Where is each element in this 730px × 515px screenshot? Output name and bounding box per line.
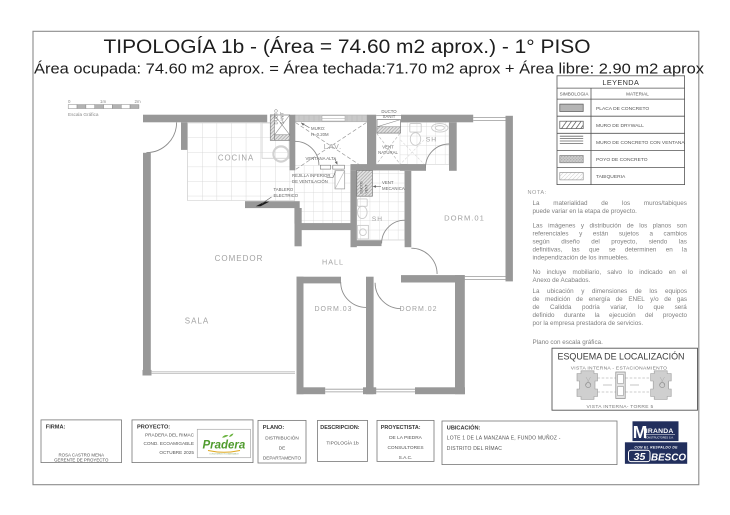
svg-text:IRANDA: IRANDA xyxy=(646,428,674,435)
svg-text:La ubicación y dimensiones de: La ubicación y dimensiones de los equipo… xyxy=(533,288,688,295)
svg-text:DESCRIPCION:: DESCRIPCION: xyxy=(320,425,359,431)
svg-text:BESCO: BESCO xyxy=(651,452,686,464)
svg-text:referenciales y están sujetos: referenciales y están sujetos a cambios xyxy=(533,230,688,237)
svg-text:de medición de energía de ENEL: de medición de energía de ENEL y/o de ga… xyxy=(533,296,688,303)
svg-text:POYO DE CONCRETO: POYO DE CONCRETO xyxy=(596,157,648,163)
svg-text:TIPOLOGÍA 1b - (Área = 74.60: TIPOLOGÍA 1b - (Área = 74.60 m2 aprox.) … xyxy=(104,35,591,58)
svg-text:HALL: HALL xyxy=(322,258,344,267)
svg-text:VISTA INTERNA - ESTACIONAMIENT: VISTA INTERNA - ESTACIONAMIENTO xyxy=(571,365,668,371)
svg-text:TIPOLOGÍA 1b: TIPOLOGÍA 1b xyxy=(326,439,359,446)
svg-text:PRADERA DEL RIMAC: PRADERA DEL RIMAC xyxy=(145,433,195,438)
svg-text:COCINA: COCINA xyxy=(218,154,254,163)
svg-text:No incluye mobiliario, salvo l: No incluye mobiliario, salvo lo indicado… xyxy=(533,269,687,276)
svg-text:CON EL RESPALDO DE: CON EL RESPALDO DE xyxy=(634,445,678,449)
svg-text:ELECTRICO: ELECTRICO xyxy=(274,193,299,198)
svg-text:Las imágenes y distribución de: Las imágenes y distribución de los plano… xyxy=(533,222,688,229)
svg-text:puede variar en la etapa de pr: puede variar en la etapa de proyecto. xyxy=(533,208,638,215)
svg-text:COND. ECOAMIGABLE: COND. ECOAMIGABLE xyxy=(143,441,194,446)
svg-text:VENTANA ALTA: VENTANA ALTA xyxy=(306,156,337,161)
svg-text:según diseño del proyecto, sie: según diseño del proyecto, siendo las xyxy=(533,238,687,245)
svg-text:CONSTRUCTORES S.A.: CONSTRUCTORES S.A. xyxy=(645,435,674,439)
svg-text:DORM.03: DORM.03 xyxy=(314,306,352,313)
svg-text:definido durante la ejecución: definido durante la ejecución del proyec… xyxy=(533,312,688,319)
svg-text:SANIT: SANIT xyxy=(383,114,396,119)
svg-text:DE VENTILACIÓN: DE VENTILACIÓN xyxy=(292,179,328,184)
svg-text:MURO DE DRYWALL: MURO DE DRYWALL xyxy=(596,123,644,129)
svg-text:MECANICA: MECANICA xyxy=(382,186,405,191)
svg-text:UBICACIÓN:: UBICACIÓN: xyxy=(447,423,481,431)
svg-text:TABIQUERIA: TABIQUERIA xyxy=(596,174,626,180)
svg-text:NOTA:: NOTA: xyxy=(528,190,547,196)
svg-text:definitivas, las que se determ: definitivas, las que se determinen en la xyxy=(533,246,688,253)
svg-text:PROYECTO:: PROYECTO: xyxy=(137,425,170,431)
svg-text:Pradera: Pradera xyxy=(202,440,245,452)
svg-text:Plano con escala gráfica.: Plano con escala gráfica. xyxy=(533,339,604,346)
svg-text:Anexo de Acabados.: Anexo de Acabados. xyxy=(533,277,591,284)
svg-text:DUCTO: DUCTO xyxy=(381,109,397,114)
svg-text:DEPARTAMENTO: DEPARTAMENTO xyxy=(263,455,302,460)
svg-text:VENT: VENT xyxy=(382,145,394,150)
svg-text:Escala Gráfica: Escala Gráfica xyxy=(68,112,99,117)
svg-text:H=0.20M: H=0.20M xyxy=(311,132,329,137)
svg-text:DE LA PIEDRA: DE LA PIEDRA xyxy=(389,435,423,441)
svg-text:2m: 2m xyxy=(135,99,141,104)
svg-text:LOTE 1 DE LA MANZANA E, FUNDO: LOTE 1 DE LA MANZANA E, FUNDO MUÑOZ - xyxy=(447,434,561,441)
svg-text:SIMBOLOGIA: SIMBOLOGIA xyxy=(560,92,590,97)
svg-text:independización de los inmuebl: independización de los inmuebles. xyxy=(533,254,630,261)
svg-text:LAV.: LAV. xyxy=(324,142,342,151)
svg-text:MATERIAL: MATERIAL xyxy=(626,92,649,97)
svg-text:MURO:: MURO: xyxy=(311,126,325,131)
svg-text:DORM.01: DORM.01 xyxy=(444,214,485,223)
svg-text:DUCTO: DUCTO xyxy=(274,109,279,125)
svg-text:DORM.02: DORM.02 xyxy=(399,306,437,313)
svg-text:TABLERO: TABLERO xyxy=(274,187,294,192)
svg-text:por la empresa prestadora de s: por la empresa prestadora de servicios. xyxy=(533,320,644,327)
svg-text:SH: SH xyxy=(372,216,383,223)
svg-text:DISTRIBUCIÓN: DISTRIBUCIÓN xyxy=(265,435,299,441)
svg-text:PROYECTISTA:: PROYECTISTA: xyxy=(381,425,421,431)
svg-text:SH: SH xyxy=(426,137,437,144)
svg-text:S.A.C.: S.A.C. xyxy=(399,455,413,461)
svg-text:VENT: VENT xyxy=(365,184,369,193)
svg-text:1m: 1m xyxy=(100,99,106,104)
svg-text:de Calidda podría variar, lo q: de Calidda podría variar, lo que será xyxy=(533,304,688,311)
svg-text:PLANO:: PLANO: xyxy=(263,425,285,431)
svg-text:VISTA INTERNA- TORRE 5: VISTA INTERNA- TORRE 5 xyxy=(587,404,654,410)
svg-text:CONSULTORES: CONSULTORES xyxy=(387,445,423,451)
svg-text:Área ocupada: 74.60 m2 aprox.: Área ocupada: 74.60 m2 aprox. = Área tec… xyxy=(34,61,705,78)
svg-text:SALA: SALA xyxy=(185,317,209,326)
svg-text:VENT: VENT xyxy=(382,180,394,185)
svg-text:DISTRITO DEL RÍMAC: DISTRITO DEL RÍMAC xyxy=(447,445,502,452)
svg-text:CONDOMINIO ECOAMIGABLE: CONDOMINIO ECOAMIGABLE xyxy=(209,453,239,456)
svg-text:SANIT: SANIT xyxy=(280,111,285,124)
svg-text:LEYENDA: LEYENDA xyxy=(602,78,639,87)
svg-text:ESQUEMA DE LOCALIZACIÓN: ESQUEMA DE LOCALIZACIÓN xyxy=(558,352,685,362)
svg-text:NATURAL: NATURAL xyxy=(378,150,398,155)
svg-text:GERENTE DE PROYECTO: GERENTE DE PROYECTO xyxy=(54,458,109,463)
svg-text:35: 35 xyxy=(634,451,646,463)
svg-text:PLACA DE CONCRETO: PLACA DE CONCRETO xyxy=(596,106,649,112)
svg-text:FIRMA:: FIRMA: xyxy=(46,425,66,431)
svg-text:DE: DE xyxy=(279,446,286,451)
svg-text:DUCTO: DUCTO xyxy=(360,181,364,193)
svg-text:REJILLA INFERIOR: REJILLA INFERIOR xyxy=(292,173,330,178)
svg-text:MURO DE CONCRETO CON VENTANA: MURO DE CONCRETO CON VENTANA xyxy=(596,140,685,146)
svg-text:COMEDOR: COMEDOR xyxy=(215,254,264,263)
svg-text:OCTUBRE 2025: OCTUBRE 2025 xyxy=(159,450,194,455)
svg-text:La materialidad de los muros/t: La materialidad de los muros/tabiques xyxy=(533,200,687,207)
